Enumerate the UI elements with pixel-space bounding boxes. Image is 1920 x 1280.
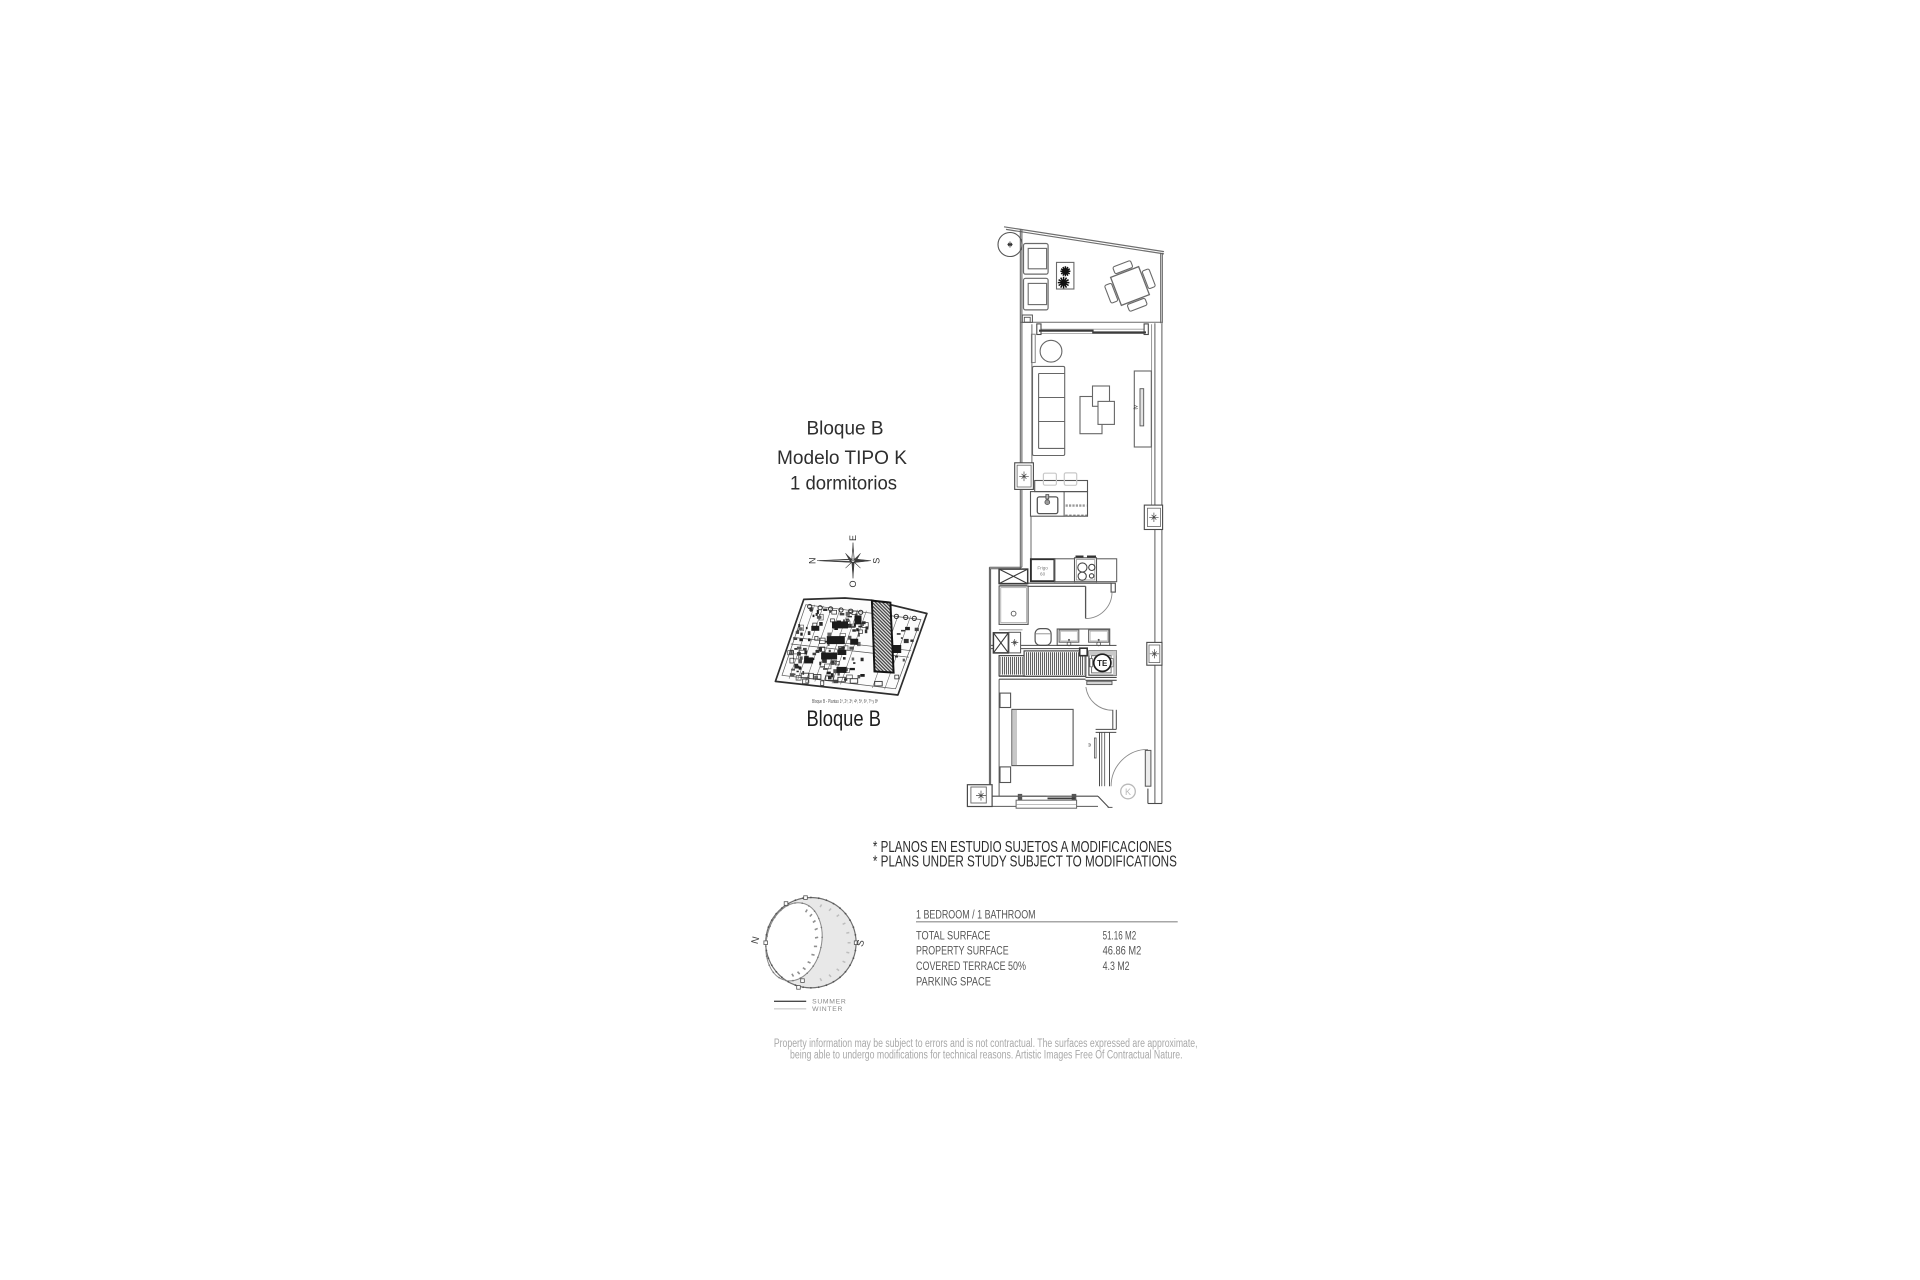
svg-text:51.16 M2: 51.16 M2 bbox=[1103, 930, 1137, 942]
svg-text:Bloque B - Plantas 1ª, 2ª, 3ª,: Bloque B - Plantas 1ª, 2ª, 3ª, 4ª, 5ª, 6… bbox=[812, 699, 878, 705]
svg-text:Modelo TIPO K: Modelo TIPO K bbox=[777, 447, 907, 469]
svg-text:PROPERTY SURFACE: PROPERTY SURFACE bbox=[916, 946, 1009, 958]
svg-text:COVERED TERRACE 50%: COVERED TERRACE 50% bbox=[916, 961, 1026, 973]
svg-text:S: S bbox=[872, 558, 882, 564]
svg-text:Property information may be su: Property information may be subject to e… bbox=[774, 1038, 1198, 1050]
svg-text:N: N bbox=[808, 557, 818, 564]
svg-text:tv: tv bbox=[1134, 405, 1140, 410]
svg-text:46.86 M2: 46.86 M2 bbox=[1103, 946, 1142, 958]
svg-text:SUMMER: SUMMER bbox=[812, 999, 846, 1006]
svg-text:O: O bbox=[848, 580, 858, 587]
svg-text:Bloque B: Bloque B bbox=[806, 706, 881, 731]
svg-text:K: K bbox=[1125, 787, 1131, 797]
svg-text:being able to undergo modifica: being able to undergo modifications for … bbox=[790, 1049, 1183, 1061]
svg-text:Frigo: Frigo bbox=[1037, 566, 1048, 571]
svg-text:1 BEDROOM / 1 BATHROOM: 1 BEDROOM / 1 BATHROOM bbox=[916, 909, 1036, 921]
svg-text:4.3 M2: 4.3 M2 bbox=[1103, 961, 1130, 973]
svg-text:TE: TE bbox=[1097, 659, 1108, 668]
svg-text:WINTER: WINTER bbox=[812, 1006, 843, 1013]
svg-text:60: 60 bbox=[1040, 572, 1046, 577]
svg-text:w: w bbox=[1088, 743, 1093, 747]
svg-text:E: E bbox=[848, 535, 858, 541]
svg-text:1 dormitorios: 1 dormitorios bbox=[790, 473, 897, 495]
svg-text:* PLANS UNDER STUDY SUBJECT TO: * PLANS UNDER STUDY SUBJECT TO MODIFICAT… bbox=[873, 854, 1177, 871]
svg-text:PARKING SPACE: PARKING SPACE bbox=[916, 976, 991, 988]
svg-text:TOTAL SURFACE: TOTAL SURFACE bbox=[916, 930, 991, 942]
svg-text:Bloque B: Bloque B bbox=[807, 418, 884, 440]
